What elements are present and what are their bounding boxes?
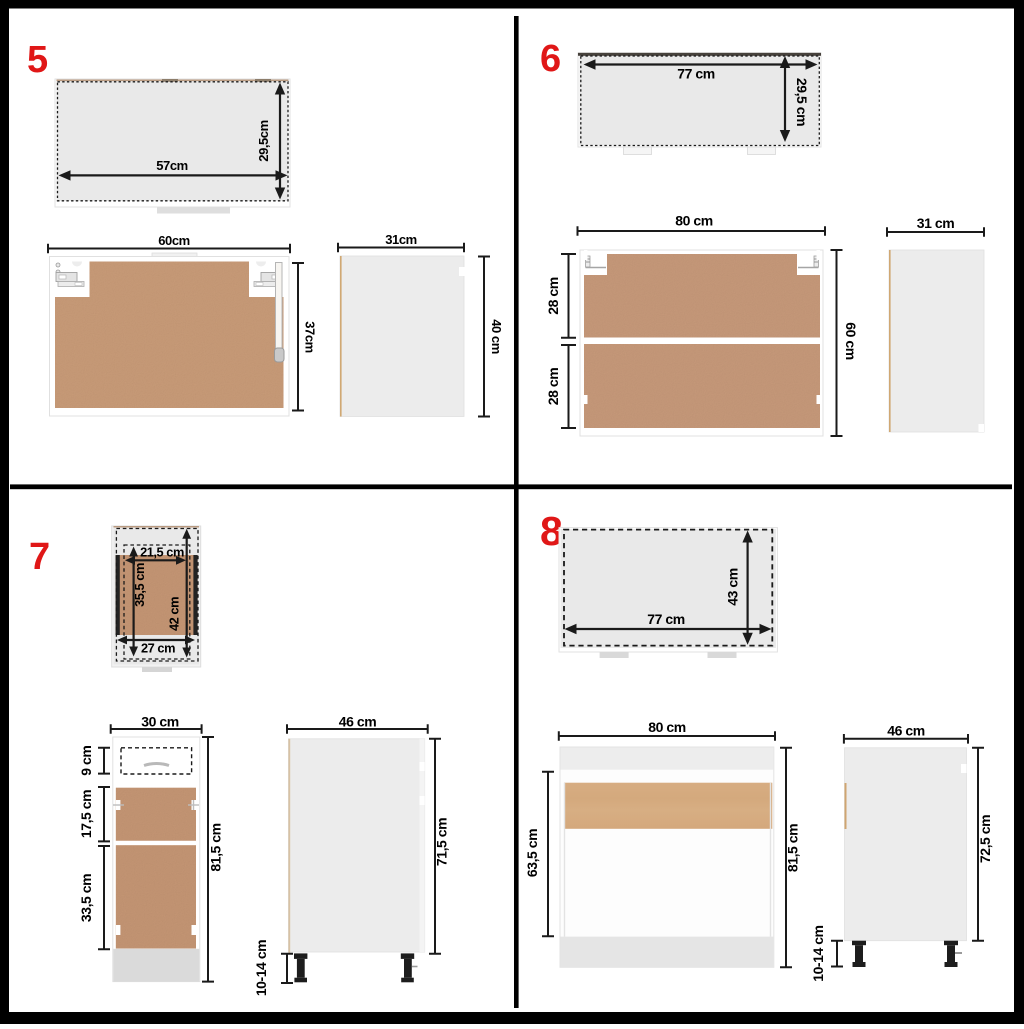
svg-text:72,5 cm: 72,5 cm [977, 815, 993, 863]
svg-text:33,5 cm: 33,5 cm [78, 874, 94, 922]
svg-text:77 cm: 77 cm [647, 611, 684, 627]
svg-text:46 cm: 46 cm [339, 714, 376, 730]
svg-text:40 cm: 40 cm [489, 319, 504, 354]
svg-text:71,5 cm: 71,5 cm [434, 818, 450, 866]
svg-text:29,5 cm: 29,5 cm [794, 78, 810, 126]
svg-text:21,5 cm: 21,5 cm [140, 545, 184, 560]
svg-text:60cm: 60cm [158, 233, 189, 248]
svg-text:29,5cm: 29,5cm [256, 120, 271, 161]
svg-text:10-14 cm: 10-14 cm [810, 925, 826, 981]
svg-text:63,5 cm: 63,5 cm [524, 829, 540, 877]
svg-text:17,5 cm: 17,5 cm [78, 790, 94, 838]
svg-text:5: 5 [27, 39, 48, 81]
svg-text:81,5 cm: 81,5 cm [785, 824, 801, 872]
svg-text:7: 7 [29, 536, 50, 578]
svg-text:10-14 cm: 10-14 cm [253, 940, 269, 996]
svg-text:35,5 cm: 35,5 cm [132, 563, 147, 607]
svg-text:43 cm: 43 cm [725, 568, 741, 605]
svg-text:81,5 cm: 81,5 cm [208, 823, 224, 871]
svg-text:80 cm: 80 cm [675, 213, 712, 229]
svg-text:77 cm: 77 cm [677, 66, 714, 82]
svg-text:37cm: 37cm [303, 321, 318, 352]
svg-text:28 cm: 28 cm [545, 368, 561, 405]
svg-text:42 cm: 42 cm [167, 597, 182, 631]
svg-text:46 cm: 46 cm [887, 723, 924, 739]
svg-text:28 cm: 28 cm [545, 277, 561, 314]
svg-text:57cm: 57cm [156, 158, 187, 173]
svg-text:80 cm: 80 cm [648, 719, 685, 735]
svg-text:31cm: 31cm [385, 232, 416, 247]
svg-text:27 cm: 27 cm [141, 641, 175, 656]
svg-text:6: 6 [540, 38, 561, 80]
svg-text:60 cm: 60 cm [843, 322, 859, 359]
svg-text:9 cm: 9 cm [78, 746, 94, 776]
svg-text:30 cm: 30 cm [141, 714, 178, 730]
svg-text:31 cm: 31 cm [917, 215, 954, 231]
